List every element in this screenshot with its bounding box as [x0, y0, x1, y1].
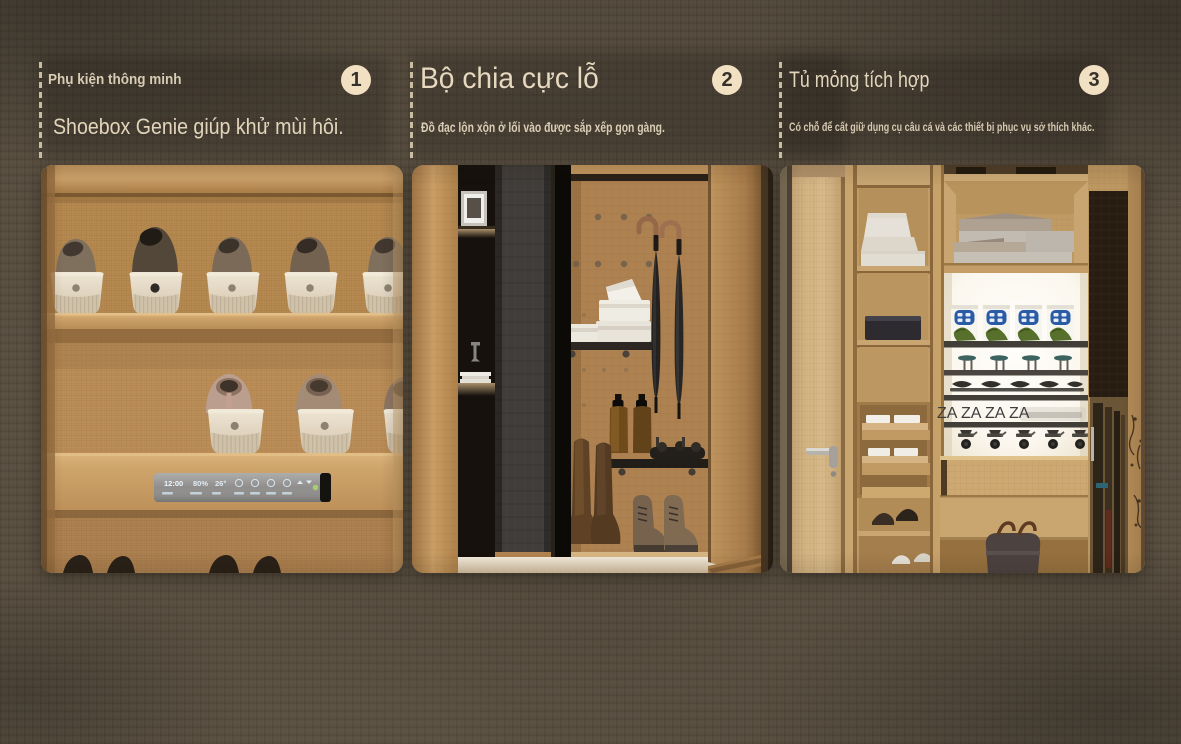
svg-text:26°: 26°	[215, 479, 226, 488]
svg-text:12:00: 12:00	[164, 479, 183, 488]
svg-text:80%: 80%	[193, 479, 208, 488]
svg-text:ZA ZA ZA ZA: ZA ZA ZA ZA	[937, 405, 1030, 422]
